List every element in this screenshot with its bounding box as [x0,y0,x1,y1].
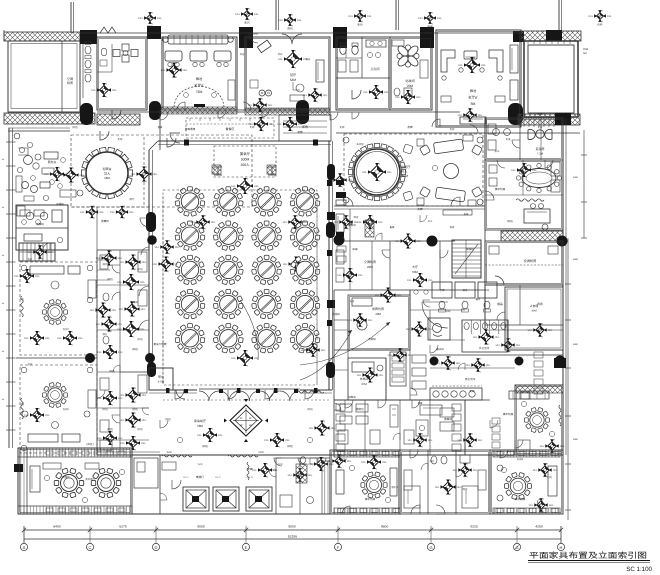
svg-text:KTV: KTV [469,95,479,100]
svg-text:2/EL: 2/EL [78,337,84,340]
svg-text:(休区): (休区) [307,408,314,411]
svg-text:1/EL: 1/EL [154,246,160,249]
svg-text:1/EL: 1/EL [309,427,315,430]
svg-text:2/EL: 2/EL [211,221,217,224]
svg-text:备餐: 备餐 [390,225,395,229]
svg-text:1/EL: 1/EL [532,469,538,472]
svg-text:前厅: 前厅 [290,73,297,77]
svg-text:舞池: 舞池 [470,89,477,93]
svg-text:1/EL: 1/EL [27,251,33,254]
svg-text:2/EL: 2/EL [112,309,118,312]
svg-text:库房: 库房 [354,215,359,219]
svg-text:排烟: 排烟 [147,25,153,29]
svg-text:2/EL: 2/EL [112,89,118,92]
svg-text:C: C [89,545,92,550]
svg-text:包房C: 包房C [63,327,70,331]
svg-text:1/EL: 1/EL [96,323,102,326]
svg-text:1/EL: 1/EL [395,240,401,243]
svg-text:2/EL: 2/EL [142,261,148,264]
svg-text:1/EL: 1/EL [96,257,102,260]
svg-text:库房: 库房 [352,247,358,251]
svg-text:化妆间: 化妆间 [405,79,415,83]
svg-text:2/EL: 2/EL [157,17,163,20]
svg-text:2/EL: 2/EL [481,64,487,67]
svg-text:1/EL: 1/EL [363,91,369,94]
svg-text:备品: 备品 [497,302,503,306]
svg-text:1/EL: 1/EL [457,114,463,117]
svg-text:53M: 53M [412,270,418,274]
svg-text:洗碗: 洗碗 [446,309,451,313]
svg-text:走廊: 走廊 [538,125,543,129]
svg-text:2/EL: 2/EL [118,351,124,354]
svg-text:2/EL: 2/EL [254,357,260,360]
svg-text:走廊: 走廊 [450,127,455,131]
svg-text:1/EL: 1/EL [138,17,144,20]
svg-text:1/EL: 1/EL [24,414,30,417]
svg-text:2/EL: 2/EL [428,439,434,442]
svg-text:服务: 服务 [103,332,108,336]
svg-text:A: A [23,545,26,550]
svg-text:1/EL: 1/EL [495,344,501,347]
svg-text:宴会厅侧廊: 宴会厅侧廊 [154,342,167,346]
svg-text:多功能: 多功能 [356,142,364,146]
svg-text:排烟: 排烟 [427,25,433,29]
svg-text:2/EL: 2/EL [387,171,393,174]
svg-text:1/EL: 1/EL [117,281,123,284]
svg-text:2/EL: 2/EL [358,274,364,277]
svg-text:2/EL: 2/EL [118,257,124,260]
svg-text:2/EL: 2/EL [478,114,484,117]
svg-text:2/EL: 2/EL [456,362,462,365]
svg-text:1/EL: 1/EL [120,261,126,264]
svg-text:18M: 18M [104,176,110,180]
svg-text:1/EL: 1/EL [110,211,116,214]
svg-text:1/EL: 1/EL [308,463,314,466]
svg-text:7.2M: 7.2M [537,152,544,156]
svg-text:1/EL: 1/EL [131,173,137,176]
svg-text:2/EL: 2/EL [142,394,148,397]
svg-text:2/EL: 2/EL [303,221,309,224]
svg-text:走廊: 走廊 [417,207,423,211]
svg-text:足浴房: 足浴房 [535,147,544,151]
svg-text:2/EL: 2/EL [367,15,373,18]
svg-text:空调: 空调 [440,289,445,292]
svg-text:1/EL: 1/EL [235,13,241,16]
svg-text:2/EL: 2/EL [218,434,224,437]
svg-text:1/EL: 1/EL [407,279,413,282]
svg-text:风井: 风井 [583,47,589,51]
svg-text:2/EL: 2/EL [118,323,124,326]
svg-text:1/EL: 1/EL [435,362,441,365]
svg-text:1/EL: 1/EL [418,17,424,20]
svg-text:EL-1: EL-1 [183,476,189,479]
svg-text:1/EL: 1/EL [337,274,343,277]
svg-text:女卫生间: 女卫生间 [479,346,490,350]
svg-text:备餐: 备餐 [418,401,423,405]
svg-text:1/EL: 1/EL [302,94,308,97]
svg-text:2/EL: 2/EL [269,123,275,126]
svg-text:洗消间: 洗消间 [332,312,340,316]
svg-text:电梯厅: 电梯厅 [196,475,205,479]
svg-text:货台: 货台 [240,52,245,56]
svg-text:2/EL: 2/EL [417,240,423,243]
svg-text:走廊: 走廊 [340,125,345,129]
svg-text:1/EL: 1/EL [473,336,479,339]
svg-text:空调机房: 空调机房 [364,260,376,264]
svg-text:2/EL: 2/EL [516,344,522,347]
svg-text:机房: 机房 [67,81,73,85]
svg-text:(休): (休) [548,476,552,479]
svg-text:2/EL: 2/EL [45,414,51,417]
svg-text:40人: 40人 [401,170,409,174]
svg-text:(休区): (休区) [102,408,109,411]
svg-text:(休): (休) [20,403,24,406]
svg-text:贵宾包房: 贵宾包房 [372,307,384,311]
svg-text:2F: 2F [249,417,252,420]
svg-text:1/EL: 1/EL [283,263,289,266]
svg-text:1/EL: 1/EL [231,185,237,188]
svg-text:2/EL: 2/EL [140,281,146,284]
svg-text:2/EL: 2/EL [548,329,554,332]
svg-text:备餐间: 备餐间 [444,417,452,421]
svg-text:1/EL: 1/EL [44,173,50,176]
svg-text:2/EL: 2/EL [268,104,274,107]
svg-text:2300: 2300 [277,463,283,466]
svg-text:1/EL: 1/EL [120,419,126,422]
svg-text:2/EL: 2/EL [285,439,291,442]
svg-text:2/EL: 2/EL [607,15,613,18]
svg-text:2/EL: 2/EL [48,251,54,254]
svg-text:4800: 4800 [573,438,579,441]
svg-text:宴会前厅: 宴会前厅 [194,419,206,423]
svg-text:按摩间: 按摩间 [101,219,109,223]
svg-text:2/EL: 2/EL [378,221,384,224]
svg-text:贵宾接待: 贵宾接待 [85,477,95,481]
svg-text:备餐间: 备餐间 [130,300,138,304]
svg-text:2/EL: 2/EL [129,211,135,214]
svg-text:(休区): (休区) [165,418,172,421]
svg-text:2/EL: 2/EL [379,374,385,377]
svg-text:SC 1:100: SC 1:100 [626,566,652,573]
svg-text:1/EL: 1/EL [361,461,367,464]
svg-text:大包厢: 大包厢 [530,304,539,308]
svg-text:豪华包房: 豪华包房 [503,412,514,416]
svg-text:2/EL: 2/EL [354,221,360,224]
svg-text:包房: 包房 [28,362,33,366]
svg-text:大厅: 大厅 [412,265,418,269]
svg-text:2/EL: 2/EL [560,445,566,448]
svg-text:1/EL: 1/EL [277,123,283,126]
svg-text:2/EL: 2/EL [153,173,159,176]
svg-text:服务: 服务 [103,262,108,266]
svg-text:1/EL: 1/EL [190,221,196,224]
svg-text:22人: 22人 [104,172,110,176]
svg-text:(休区): (休区) [202,445,209,448]
svg-text:豪华包房: 豪华包房 [515,497,526,501]
svg-text:(休区): (休区) [72,126,79,129]
svg-text:1/EL: 1/EL [588,15,594,18]
svg-text:KTV: KTV [195,83,205,88]
svg-text:2/EL: 2/EL [308,474,314,477]
svg-text:2/EL: 2/EL [254,185,260,188]
svg-text:2/EL: 2/EL [331,427,337,430]
svg-text:2/EL: 2/EL [486,364,492,367]
svg-text:2/EL: 2/EL [254,13,260,16]
svg-text:2/EL: 2/EL [35,275,41,278]
svg-text:1/EL: 1/EL [80,211,86,214]
svg-text:22M: 22M [367,265,373,269]
svg-text:2/EL: 2/EL [457,486,463,489]
svg-text:1500: 1500 [197,463,203,466]
svg-text:(休区): (休区) [107,278,114,281]
svg-text:(休区): (休区) [109,370,116,373]
svg-text:库房: 库房 [463,487,468,491]
svg-text:排风: 排风 [287,27,293,31]
svg-text:1/EL: 1/EL [539,445,545,448]
svg-text:2300: 2300 [258,451,264,454]
svg-text:1/EL: 1/EL [458,64,464,67]
svg-text:1/EL: 1/EL [300,349,306,352]
svg-text:1/EL: 1/EL [197,434,203,437]
svg-text:消毒间: 消毒间 [348,395,356,399]
svg-text:1/EL: 1/EL [527,329,533,332]
svg-text:(休区): (休区) [507,220,514,223]
svg-text:1/EL: 1/EL [119,308,125,311]
svg-text:平面家具布置及立面索引图: 平面家具布置及立面索引图 [529,551,647,560]
svg-text:4250: 4250 [535,525,543,529]
svg-text:(休区): (休区) [137,338,144,341]
svg-text:2/EL: 2/EL [183,69,189,72]
svg-text:走廊: 走廊 [297,130,303,134]
svg-text:2/EL: 2/EL [416,96,422,99]
svg-text:1/EL: 1/EL [278,58,284,61]
svg-text:1/EL: 1/EL [153,263,159,266]
svg-text:包房A: 包房A [341,457,348,461]
svg-text:1500: 1500 [166,451,172,454]
svg-text:衣帽间: 衣帽间 [56,202,64,206]
svg-text:2/EL: 2/EL [140,328,146,331]
svg-text:1/EL: 1/EL [528,504,534,507]
svg-text:2/EL: 2/EL [368,319,374,322]
svg-text:5M: 5M [583,52,587,55]
svg-text:暖柜: 暖柜 [463,289,468,292]
svg-text:(休区): (休区) [132,348,139,351]
svg-text:8M: 8M [471,102,476,106]
svg-text:6175: 6175 [119,525,127,529]
svg-text:EL-2: EL-2 [215,476,221,479]
svg-text:40M: 40M [531,310,536,313]
svg-text:2/EL: 2/EL [478,439,484,442]
svg-text:1/EL: 1/EL [465,364,471,367]
svg-text:3F: 3F [240,424,243,427]
svg-text:走廊: 走廊 [407,125,413,129]
svg-text:豪华包房: 豪华包房 [365,497,376,501]
svg-text:1/EL: 1/EL [282,221,288,224]
svg-text:走廊: 走廊 [537,112,543,116]
svg-text:男卫生间: 男卫生间 [465,377,476,381]
svg-text:1/EL: 1/EL [58,174,64,177]
svg-text:2/EL: 2/EL [175,246,181,249]
svg-text:足浴: 足浴 [506,138,511,141]
svg-text:2/EL: 2/EL [408,354,414,357]
svg-text:4.5M: 4.5M [158,380,165,384]
svg-text:1/EL: 1/EL [435,486,441,489]
svg-text:迎宾台: 迎宾台 [102,167,111,171]
svg-text:(休区): (休区) [132,408,139,411]
svg-text:备餐: 备餐 [158,125,163,129]
svg-text:4F: 4F [249,424,252,427]
svg-text:(休区): (休区) [107,428,114,431]
svg-text:1/EL: 1/EL [333,221,339,224]
svg-text:52186: 52186 [288,535,297,539]
svg-text:1/EL: 1/EL [278,19,284,22]
svg-text:37M: 37M [361,382,367,386]
svg-text:2/EL: 2/EL [297,19,303,22]
svg-text:空调机房: 空调机房 [524,259,537,263]
svg-text:风井: 风井 [597,23,603,27]
svg-text:4800: 4800 [573,258,579,261]
svg-text:新风: 新风 [244,21,250,25]
svg-text:20M: 20M [407,84,414,88]
svg-text:2/EL: 2/EL [142,419,148,422]
svg-text:210M: 210M [400,174,408,178]
svg-text:2/EL: 2/EL [384,91,390,94]
svg-text:1/EL: 1/EL [348,15,354,18]
svg-text:1/EL: 1/EL [407,439,413,442]
svg-text:1/EL: 1/EL [387,354,393,357]
svg-text:楼梯间: 楼梯间 [466,247,474,251]
svg-text:柜台: 柜台 [306,57,311,61]
svg-text:包房B: 包房B [517,457,524,461]
svg-text:1/EL: 1/EL [347,319,353,322]
svg-text:(休区): (休区) [287,445,294,448]
svg-text:2/EL: 2/EL [348,179,354,182]
svg-text:贵宾厅: 贵宾厅 [62,475,70,479]
svg-text:1/EL: 1/EL [97,351,103,354]
svg-text:条机: 条机 [485,289,490,292]
svg-text:1/EL: 1/EL [252,469,258,472]
svg-text:1/EL: 1/EL [231,357,237,360]
svg-text:仓库: 仓库 [348,222,353,226]
svg-text:6400: 6400 [53,525,61,529]
svg-text:1/EL: 1/EL [452,469,458,472]
svg-text:1/EL: 1/EL [91,89,97,92]
svg-text:2/EL: 2/EL [549,504,555,507]
svg-text:1/EL: 1/EL [395,96,401,99]
svg-text:2/EL: 2/EL [473,469,479,472]
svg-text:2/EL: 2/EL [323,94,329,97]
svg-text:包房: 包房 [450,225,455,229]
svg-text:2/EL: 2/EL [99,211,105,214]
svg-text:2/EL: 2/EL [118,397,124,400]
svg-text:茶水: 茶水 [495,149,500,153]
svg-text:2/EL: 2/EL [273,469,279,472]
svg-text:H: H [560,545,563,550]
svg-text:500M: 500M [241,158,250,162]
svg-text:茶水: 茶水 [428,219,433,223]
svg-text:包房D: 包房D [63,407,70,411]
svg-text:前厅: 前厅 [129,197,135,201]
svg-text:9600: 9600 [381,525,389,529]
svg-text:豪华包房: 豪华包房 [495,187,506,191]
svg-text:1/EL: 1/EL [57,337,63,340]
svg-text:2/EL: 2/EL [298,123,304,126]
svg-text:D: D [155,545,158,550]
svg-text:1/EL: 1/EL [362,171,368,174]
svg-text:2/EL: 2/EL [532,169,538,172]
svg-text:多功能厅: 多功能厅 [398,165,412,169]
svg-text:1/EL: 1/EL [14,275,20,278]
svg-text:1/EL: 1/EL [457,439,463,442]
svg-text:(休区): (休区) [87,442,94,446]
svg-text:1/EL: 1/EL [511,169,517,172]
svg-text:2/EL: 2/EL [80,174,86,177]
svg-text:宴会厅: 宴会厅 [240,152,251,156]
svg-text:EL-3: EL-3 [247,476,253,479]
svg-text:1/EL: 1/EL [287,474,293,477]
svg-text:服务区: 服务区 [356,407,364,411]
svg-text:43M: 43M [375,312,381,316]
svg-text:存衣: 存衣 [278,52,283,56]
svg-text:9000: 9000 [197,525,205,529]
svg-text:新风: 新风 [357,23,363,27]
svg-text:服务: 服务 [430,459,435,463]
svg-text:1/EL: 1/EL [357,374,363,377]
svg-text:1/EL: 1/EL [120,442,126,445]
svg-text:备餐: 备餐 [464,212,469,216]
svg-text:走廊: 走廊 [118,137,123,141]
svg-text:(休区): (休区) [137,268,144,271]
svg-text:1F: 1F [240,417,243,420]
svg-text:2/EL: 2/EL [321,349,327,352]
svg-text:卫生间: 卫生间 [370,67,379,71]
svg-text:4800: 4800 [573,176,579,179]
svg-text:200人: 200人 [240,163,250,167]
svg-text:1/EL: 1/EL [117,328,123,331]
svg-text:8225: 8225 [470,525,478,529]
svg-text:2/EL: 2/EL [437,17,443,20]
svg-text:(休): (休) [20,298,24,301]
svg-text:1/EL: 1/EL [264,439,270,442]
svg-text:2/EL: 2/EL [382,461,388,464]
svg-text:76M: 76M [196,90,203,94]
svg-text:58M: 58M [197,424,203,428]
svg-text:走廊: 走廊 [470,389,475,393]
svg-text:1/EL: 1/EL [24,337,30,340]
svg-text:包房: 包房 [350,299,355,303]
svg-text:服务台: 服务台 [48,160,57,164]
svg-text:备餐区: 备餐区 [225,127,234,131]
svg-text:走廊: 走廊 [250,125,255,129]
svg-text:(休区): (休区) [137,428,144,431]
svg-text:2/EL: 2/EL [141,308,147,311]
svg-text:包房: 包房 [28,257,33,261]
svg-text:舞池: 舞池 [196,77,203,81]
svg-text:2/EL: 2/EL [495,336,501,339]
svg-text:G: G [429,545,432,550]
svg-text:2/EL: 2/EL [347,460,353,463]
svg-text:9000: 9000 [288,525,296,529]
svg-text:2/EL: 2/EL [141,442,147,445]
svg-text:1/EL: 1/EL [247,104,253,107]
svg-text:54M: 54M [290,78,297,82]
svg-text:E: E [245,545,248,550]
svg-text:1/EL: 1/EL [90,309,96,312]
svg-text:2/EL: 2/EL [45,337,51,340]
svg-text:2/EL: 2/EL [553,469,559,472]
svg-text:备餐通道: 备餐通道 [185,127,196,131]
svg-text:服务间: 服务间 [391,485,399,489]
